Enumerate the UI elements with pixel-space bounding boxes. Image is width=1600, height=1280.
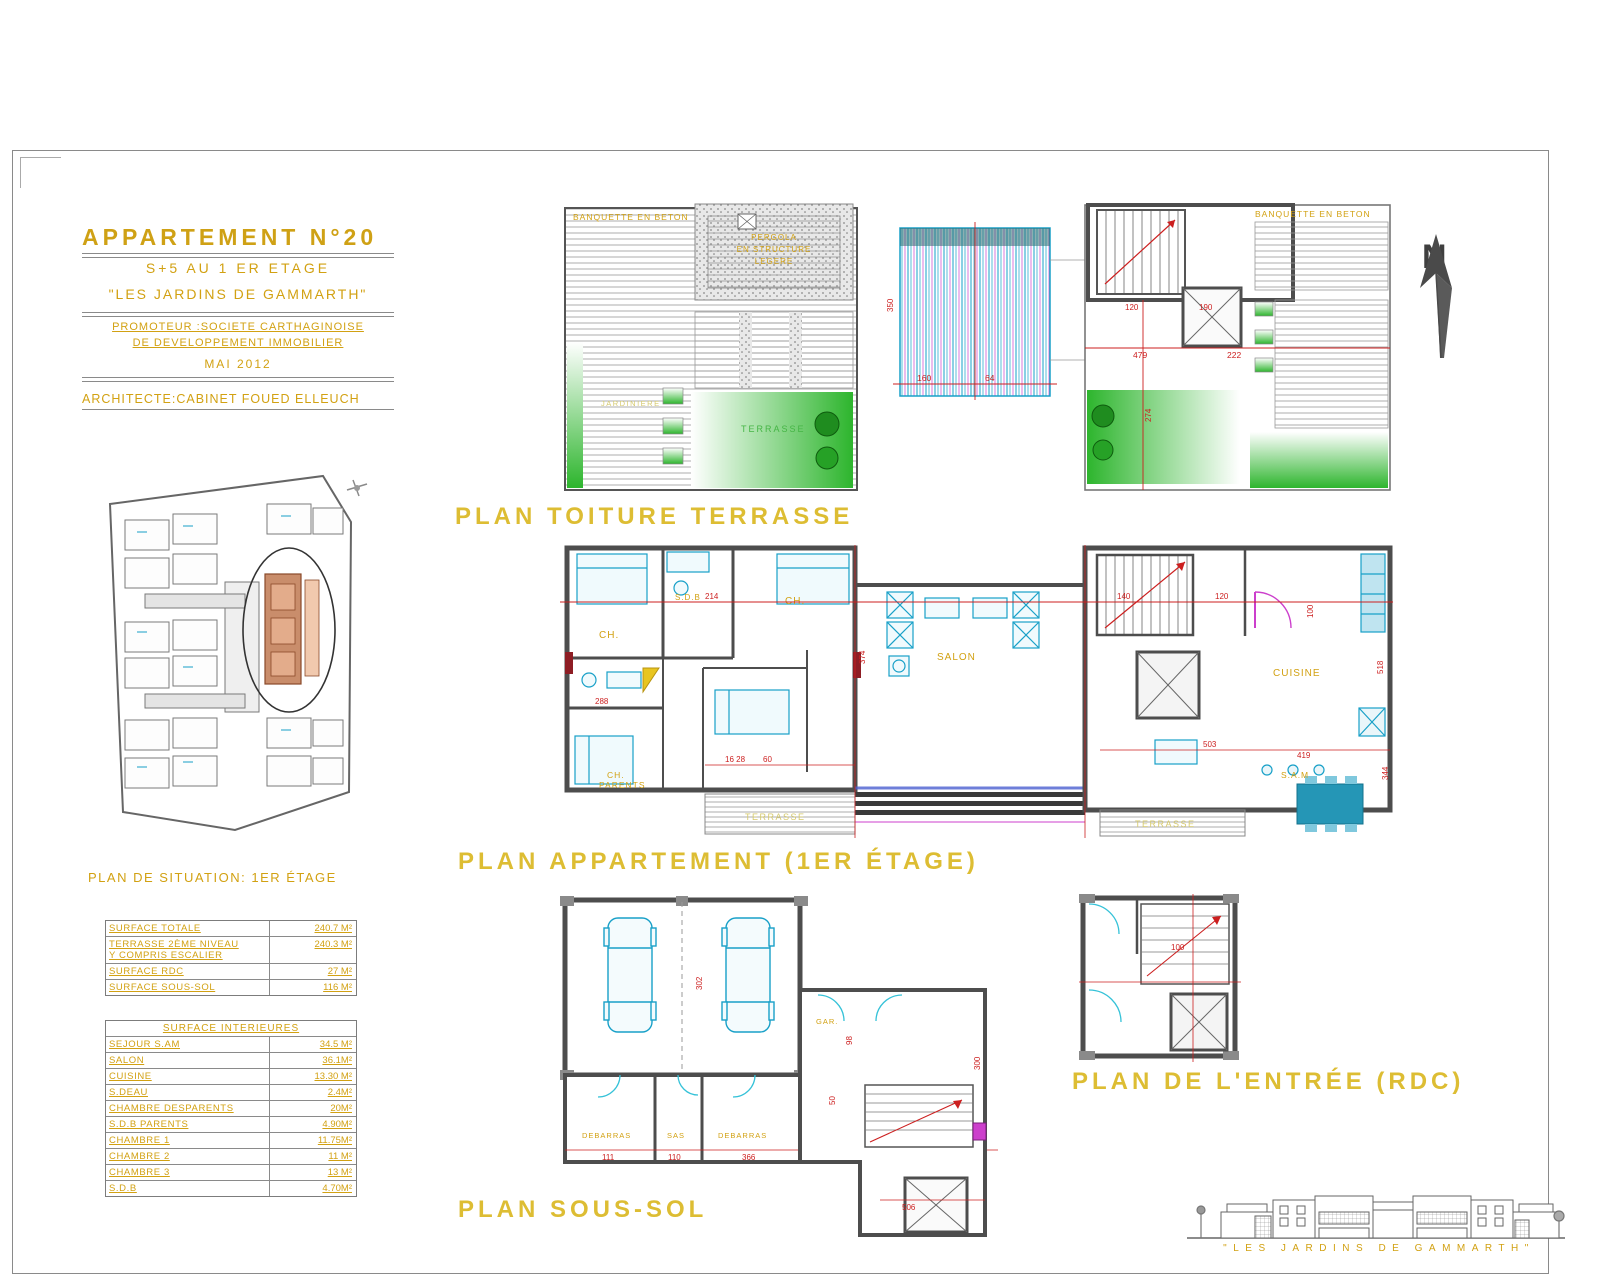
row-value: 4.90M² (269, 1117, 356, 1132)
jardiniere-label: JARDINIERE (601, 399, 661, 408)
row-label: CHAMBRE 1 (106, 1133, 269, 1148)
toiture-left-roof: BANQUETTE EN BETON PERGOLA EN STRUCTURE … (565, 204, 857, 490)
promoter-line2: DE DEVELOPPEMENT IMMOBILIER (82, 337, 394, 349)
row-label: S.D.B (106, 1181, 269, 1196)
row-value: 13 M² (269, 1165, 356, 1180)
pergola-label-1: PERGOLA (751, 233, 797, 242)
dim-label: 214 (705, 592, 719, 601)
dim-label: 190 (1199, 303, 1213, 312)
sheet-title: APPARTEMENT N°20 (82, 224, 394, 251)
room-label-gar: GAR. (816, 1017, 838, 1026)
row-label: S.D.B PARENTS (106, 1117, 269, 1132)
wing-left: CH. S.D.B CH. CH. PARENTS (565, 548, 861, 790)
plan-sous-sol-title: PLAN SOUS-SOL (458, 1196, 707, 1224)
north-arrow-icon: N (1400, 226, 1472, 368)
wing-right: CUISINE S.A.M (1085, 548, 1390, 832)
dim-label: 16 28 (725, 755, 746, 764)
dim-label: 518 (1376, 660, 1385, 674)
plan-sous-sol: 302 DEBARRAS SAS DEBARRAS 111 110 366 GA… (550, 890, 1010, 1242)
salon-area: SALON (855, 585, 1085, 822)
dining-set (1297, 776, 1363, 832)
title-block: APPARTEMENT N°20 S+5 AU 1 ER ETAGE "LES … (82, 224, 394, 410)
row-value: 36.1M² (269, 1053, 356, 1068)
green-terrace-right (1087, 390, 1240, 484)
plan-appartement: CH. S.D.B CH. CH. PARENTS SALON (555, 540, 1395, 842)
dim-label: 300 (973, 1056, 982, 1070)
dim-label: 98 (845, 1036, 854, 1045)
divider (82, 312, 394, 317)
dim-label: 60 (763, 755, 772, 764)
row-label: S.DEAU (106, 1085, 269, 1100)
architect-name: ARCHITECTE:CABINET FOUED ELLEUCH (82, 392, 394, 410)
toiture-right-roof: BANQUETTE EN BETON 120 190 479 (1085, 205, 1390, 490)
plan-entree-title: PLAN DE L'ENTRÉE (RDC) (1072, 1068, 1464, 1096)
table-row: TERRASSE 2ÈME NIVEAUY COMPRIS ESCALIER 2… (106, 937, 356, 964)
room-label-cuisine: CUISINE (1273, 668, 1321, 679)
salon-furniture (887, 592, 1039, 676)
row-label: CHAMBRE 3 (106, 1165, 269, 1180)
row-value: 27 M² (269, 964, 356, 979)
row-value: 116 M² (269, 980, 356, 995)
pergola-label-3: LEGERE (755, 257, 793, 266)
row-label: SEJOUR S.AM (106, 1037, 269, 1052)
promoter-line1: PROMOTEUR :SOCIETE CARTHAGINOISE (82, 321, 394, 333)
row-label: SALON (106, 1053, 269, 1068)
row-label: CHAMBRE DESPARENTS (106, 1101, 269, 1116)
dim-label: 366 (742, 1153, 756, 1162)
dim-label: 64 (985, 373, 995, 383)
room-label-sdb1: S.D.B (675, 593, 701, 602)
row-value: 20M² (269, 1101, 356, 1116)
dim-label: 140 (1117, 592, 1131, 601)
dim-label: 479 (1133, 350, 1147, 360)
dim-label: 50 (828, 1096, 837, 1105)
terrasse-right-label: TERRASSE (1135, 819, 1196, 829)
plan-situation-title: PLAN DE SITUATION: 1ER ÉTAGE (88, 870, 337, 885)
room-label-salon: SALON (937, 652, 976, 663)
green-strip-right (1250, 432, 1388, 488)
aircraft-icon (347, 480, 367, 496)
dim-label: 160 (917, 373, 931, 383)
dim-label: 120 (1125, 303, 1139, 312)
terrasse-left-label: TERRASSE (745, 812, 806, 822)
dim-label: 288 (595, 697, 609, 706)
banquette-left-label: BANQUETTE EN BETON (573, 212, 689, 222)
dim-label: 100 (1306, 604, 1315, 618)
row-value: 13.30 M² (269, 1069, 356, 1084)
logo-text: "LES JARDINS DE GAMMARTH" (1188, 1243, 1570, 1254)
row-label: CHAMBRE 2 (106, 1149, 269, 1164)
table-row: SURFACE SOUS-SOL 116 M² (106, 980, 356, 995)
divider (82, 377, 394, 382)
car (604, 918, 656, 1032)
plan-entree: 100 (1075, 890, 1247, 1066)
interior-surfaces-table: SURFACE INTERIEURES SEJOUR S.AM34.5 M² S… (105, 1020, 357, 1197)
table-row: SURFACE RDC 27 M² (106, 964, 356, 980)
planter-strip (567, 342, 583, 488)
toiture-patio: 160 64 350 (886, 222, 1085, 400)
row-label: SURFACE TOTALE (106, 921, 269, 936)
dim-label: 120 (1215, 592, 1229, 601)
sheet-frame-inner-corner (20, 157, 61, 188)
project-name: "LES JARDINS DE GAMMARTH" (82, 286, 394, 310)
dim-label: 350 (886, 298, 895, 312)
sheet-subtitle: S+5 AU 1 ER ETAGE (82, 260, 394, 276)
garage: 302 (560, 896, 808, 1080)
row-label: TERRASSE 2ÈME NIVEAUY COMPRIS ESCALIER (106, 937, 269, 963)
row-value: 2.4M² (269, 1085, 356, 1100)
banquette-right-label: BANQUETTE EN BETON (1255, 209, 1371, 219)
dim-label: 111 (602, 1153, 615, 1162)
pergola-label-2: EN STRUCTURE (737, 245, 812, 254)
elevation-houses (1221, 1196, 1559, 1238)
lamp-post-icon (1197, 1206, 1205, 1238)
row-value: 240.3 M² (269, 937, 356, 963)
dim-label: 222 (1227, 350, 1241, 360)
divider (82, 253, 394, 258)
table-header: SURFACE INTERIEURES (106, 1021, 356, 1037)
surface-summary-table: SURFACE TOTALE 240.7 M² TERRASSE 2ÈME NI… (105, 920, 357, 996)
row-value: 11.75M² (269, 1133, 356, 1148)
row-label: SURFACE SOUS-SOL (106, 980, 269, 995)
dim-label: 274 (1144, 408, 1153, 422)
room-label-debarras1: DEBARRAS (582, 1131, 631, 1140)
dim-label: 506 (902, 1203, 916, 1212)
logo-elevation (1185, 1190, 1567, 1244)
room-label-ch-parents2: PARENTS (599, 780, 646, 790)
room-label-sam: S.A.M (1281, 770, 1309, 780)
dim-label: 110 (668, 1153, 681, 1162)
dim-label: 419 (1297, 751, 1311, 760)
row-label: SURFACE RDC (106, 964, 269, 979)
terrasse-green-label: TERRASSE (741, 424, 806, 434)
plan-toiture-title: PLAN TOITURE TERRASSE (455, 503, 853, 531)
row-value: 240.7 M² (269, 921, 356, 936)
row-label: CUISINE (106, 1069, 269, 1084)
sheet-date: MAI 2012 (82, 357, 394, 371)
green-terrace-left: TERRASSE (691, 392, 853, 488)
stair-annex: GAR. 506 98 50 300 (800, 990, 986, 1235)
dim-label: 344 (1381, 766, 1390, 780)
dim-label: 503 (1203, 740, 1217, 749)
plan-situation (85, 462, 385, 862)
row-value: 11 M² (269, 1149, 356, 1164)
car (722, 918, 774, 1032)
dim-label: 374 (858, 650, 867, 664)
plan-toiture-terrasse: BANQUETTE EN BETON PERGOLA EN STRUCTURE … (555, 200, 1395, 500)
room-label-sas: SAS (667, 1131, 685, 1140)
pergola: PERGOLA EN STRUCTURE LEGERE (695, 204, 853, 300)
room-label-debarras2: DEBARRAS (718, 1131, 767, 1140)
plan-appartement-title: PLAN APPARTEMENT (1ER ÉTAGE) (458, 848, 979, 876)
row-value: 4.70M² (269, 1181, 356, 1196)
room-label-ch-parents: CH. (607, 770, 625, 780)
table-row: SURFACE TOTALE 240.7 M² (106, 921, 356, 937)
room-label-ch1: CH. (599, 630, 619, 641)
room-label-ch2: CH. (785, 596, 805, 607)
dim-label: 100 (1171, 943, 1185, 952)
row-value: 34.5 M² (269, 1037, 356, 1052)
entry-stairs: 100 (1141, 904, 1229, 984)
dim-label: 302 (695, 976, 704, 990)
drawing-sheet: APPARTEMENT N°20 S+5 AU 1 ER ETAGE "LES … (0, 0, 1600, 1280)
